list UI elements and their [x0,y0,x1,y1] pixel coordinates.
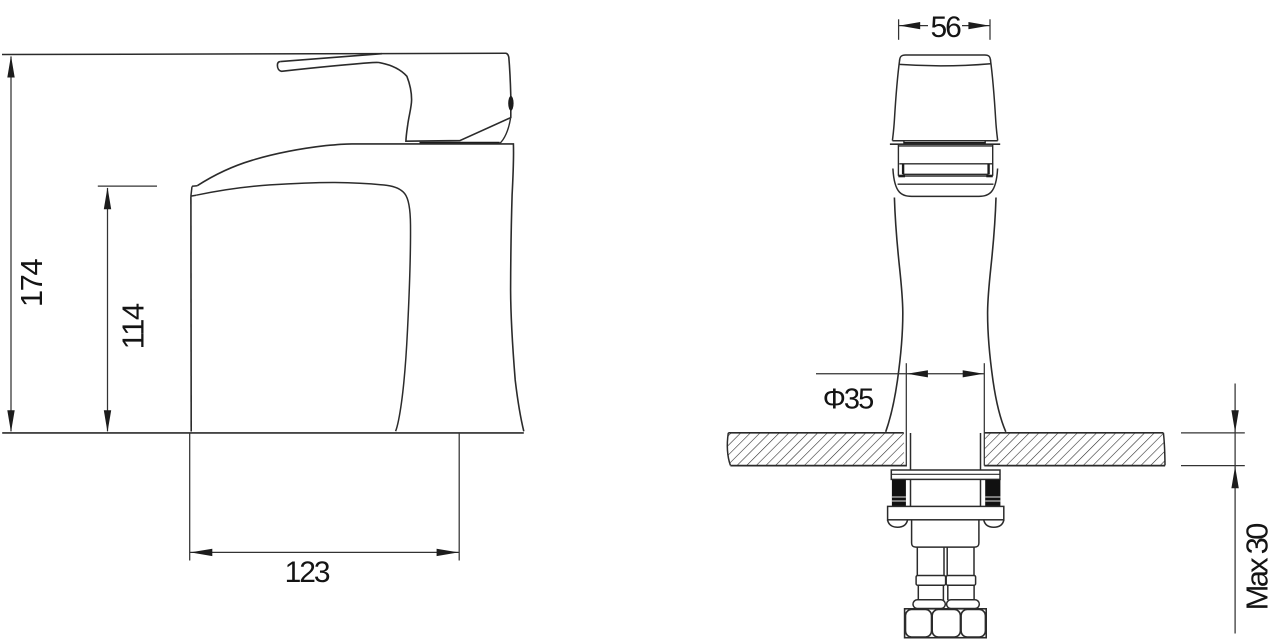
svg-text:56: 56 [931,11,962,44]
svg-text:114: 114 [116,303,151,349]
svg-text:Max 30: Max 30 [1240,523,1275,610]
svg-text:Φ35: Φ35 [823,384,873,416]
svg-text:123: 123 [285,556,330,589]
svg-text:174: 174 [14,259,49,307]
